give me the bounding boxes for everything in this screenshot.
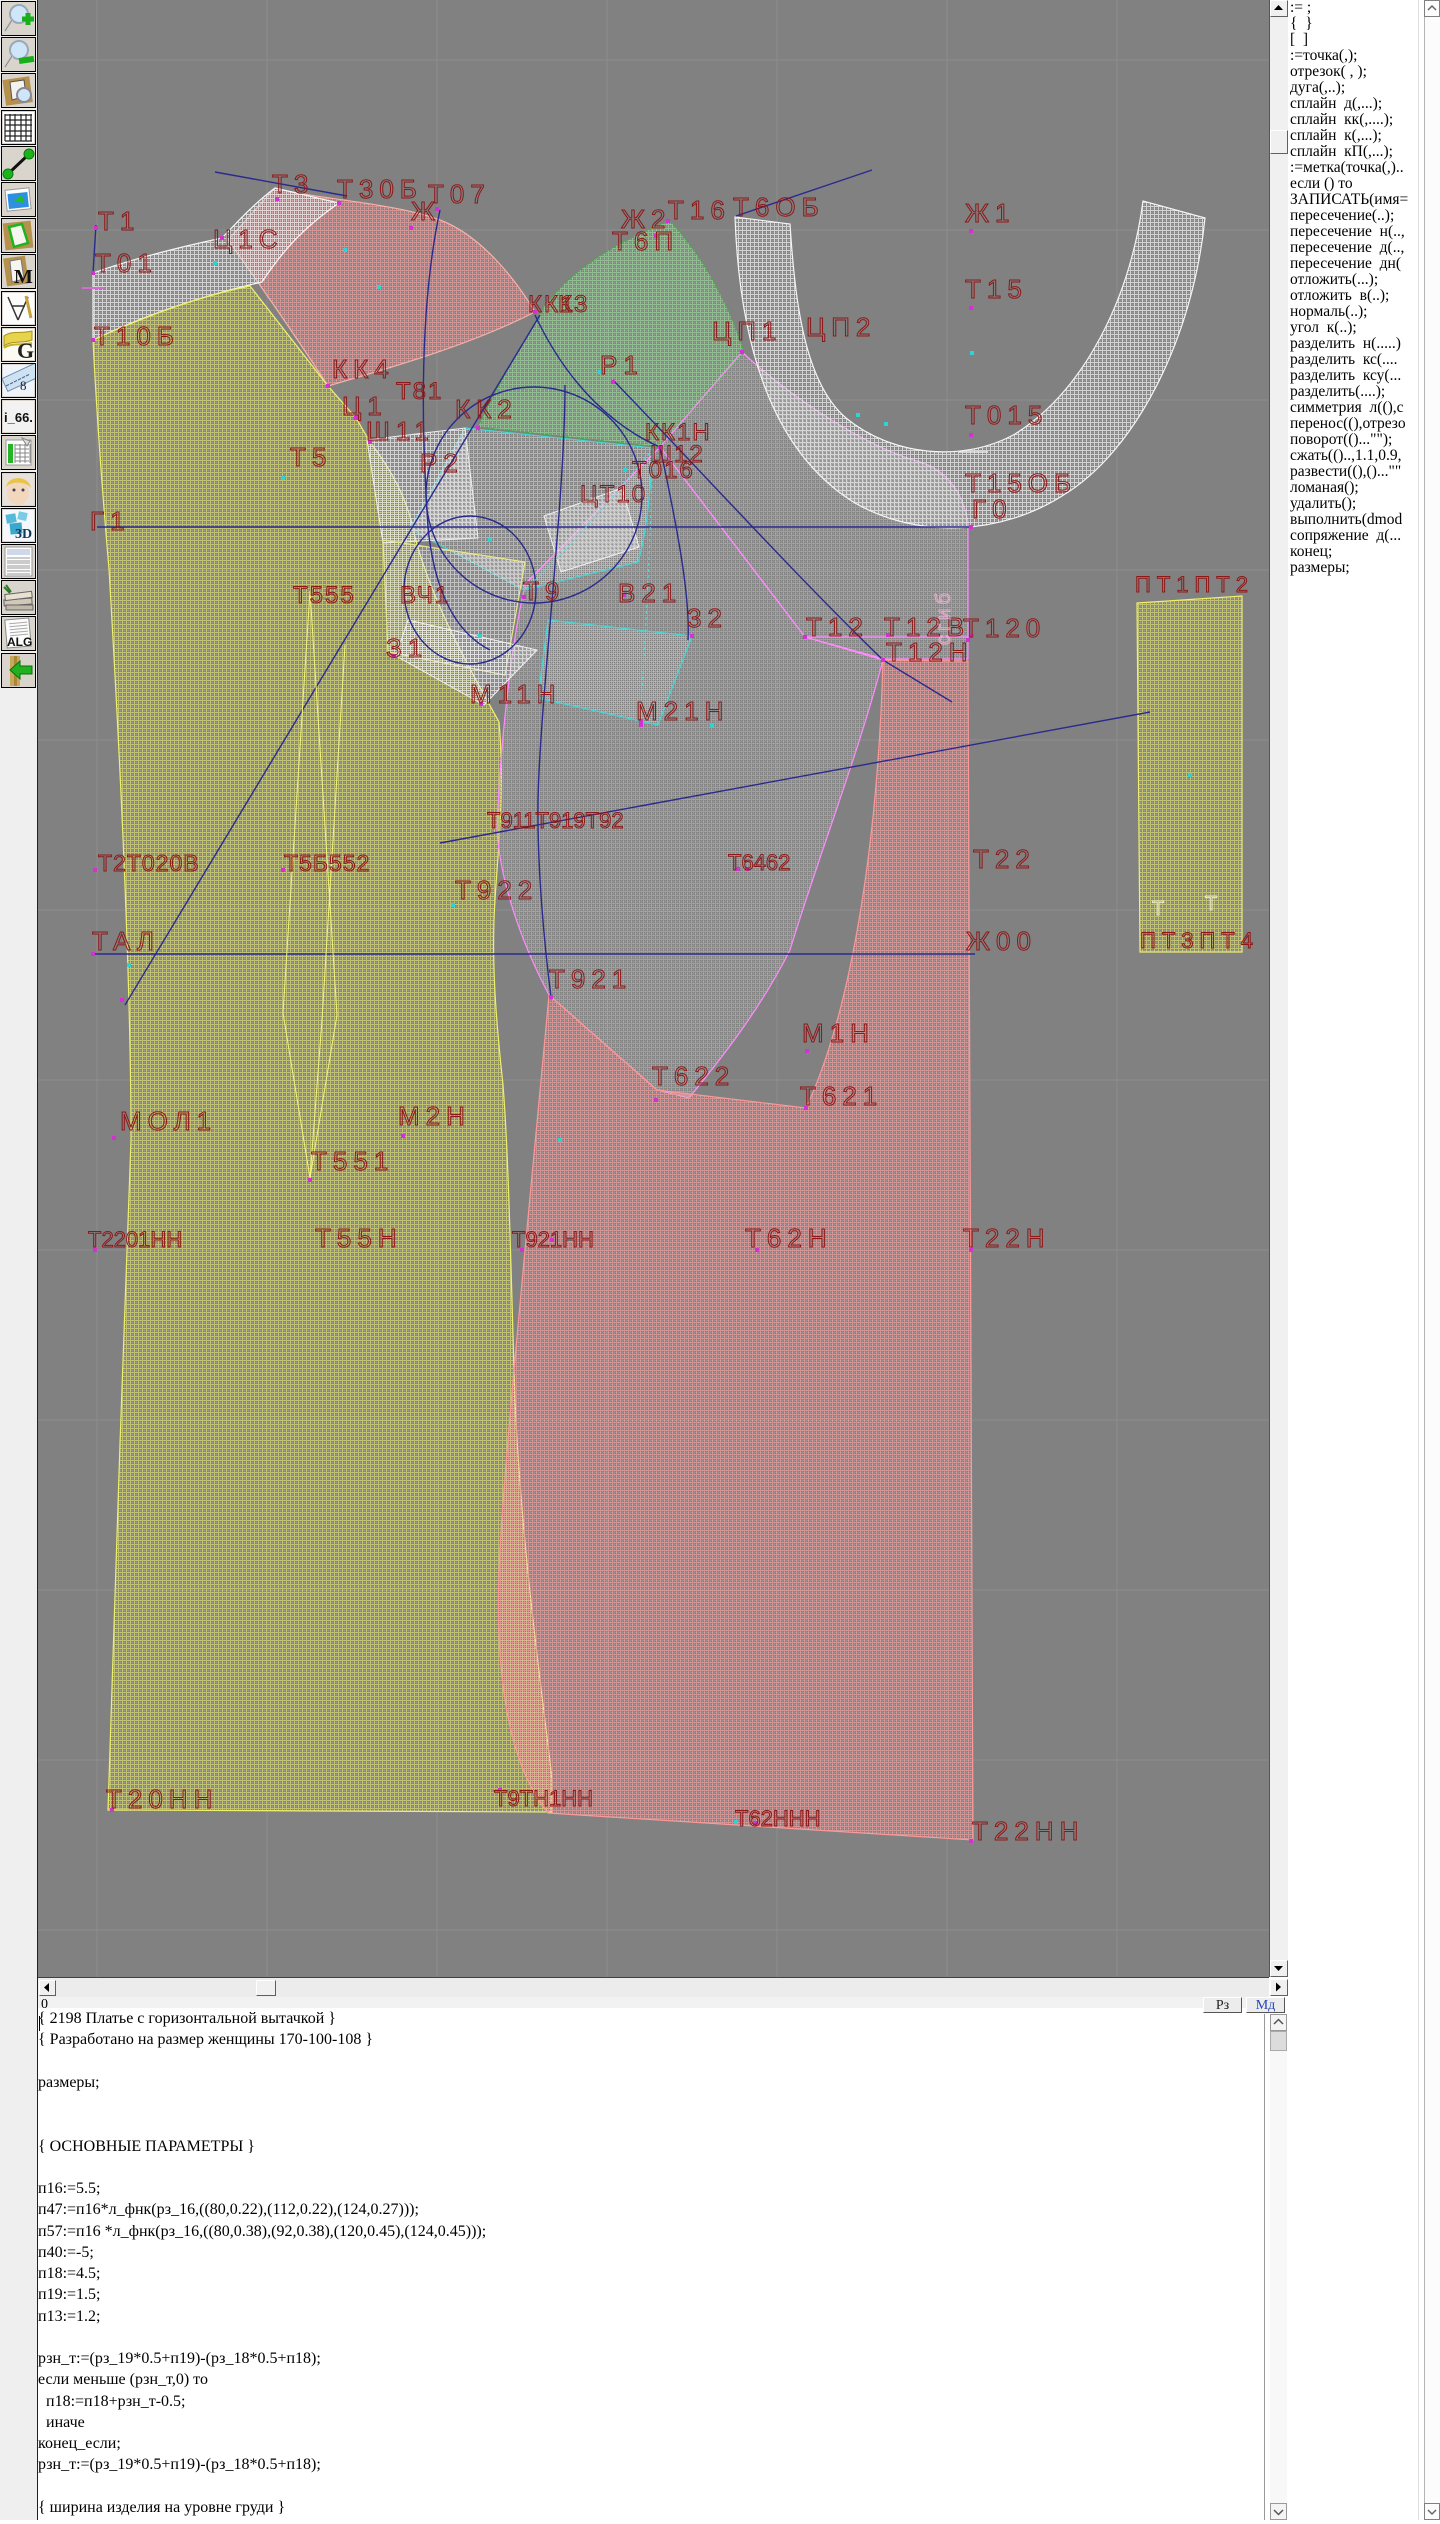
svg-text:сгиб: сгиб	[933, 589, 955, 645]
svg-text:Т62Н: Т62Н	[745, 1223, 833, 1253]
svg-text:Т55Н: Т55Н	[315, 1223, 403, 1253]
svg-text:Т22Н: Т22Н	[963, 1223, 1051, 1253]
svg-text:Г1: Г1	[90, 506, 131, 536]
svg-text:Т10Б: Т10Б	[94, 321, 180, 351]
svg-text:Т: Т	[1152, 898, 1164, 920]
svg-text:Т6ОБ: Т6ОБ	[733, 192, 825, 222]
svg-text:Ц1С: Ц1С	[213, 224, 283, 254]
svg-text:Ш11: Ш11	[366, 416, 435, 446]
svg-text:Т12Н: Т12Н	[886, 637, 974, 667]
svg-text:Т5: Т5	[290, 442, 332, 472]
svg-text:32: 32	[687, 603, 728, 633]
svg-text:ЦП2: ЦП2	[806, 312, 876, 342]
svg-text:МОЛ1: МОЛ1	[120, 1106, 217, 1136]
svg-text:Т30Б: Т30Б	[337, 174, 423, 204]
svg-text:Ж2: Ж2	[621, 204, 671, 234]
svg-text:Т921: Т921	[549, 964, 632, 994]
svg-text:К3: К3	[558, 291, 589, 318]
svg-text:Т22НН: Т22НН	[972, 1816, 1084, 1846]
svg-text:ТАЛ: ТАЛ	[92, 926, 160, 956]
svg-text:М21Н: М21Н	[636, 696, 729, 726]
svg-text:Т015: Т015	[965, 400, 1048, 430]
svg-text:Т3: Т3	[272, 169, 314, 199]
svg-text:Т5Б552: Т5Б552	[284, 850, 370, 876]
svg-text:Т551: Т551	[311, 1146, 394, 1176]
svg-text:ЦТ10: ЦТ10	[580, 481, 647, 508]
svg-text:Т2Т020В: Т2Т020В	[98, 850, 200, 876]
svg-text:Т555: Т555	[293, 582, 356, 609]
svg-text:M: M	[14, 266, 33, 288]
svg-text:i_66.: i_66.	[4, 410, 33, 425]
svg-text:G: G	[17, 338, 34, 361]
svg-text:ЦП1: ЦП1	[712, 316, 782, 346]
svg-text:Т9ТН1НН: Т9ТН1НН	[494, 1786, 593, 1811]
svg-text:Т922: Т922	[455, 875, 538, 905]
svg-text:М11Н: М11Н	[470, 679, 561, 709]
svg-text:КК4: КК4	[332, 354, 395, 384]
svg-text:Р1: Р1	[600, 350, 644, 380]
svg-text:ПТ1ПТ2: ПТ1ПТ2	[1135, 572, 1254, 597]
svg-text:Т921НН: Т921НН	[512, 1227, 594, 1252]
svg-text:ПТ3ПТ4: ПТ3ПТ4	[1140, 928, 1259, 953]
svg-text:Т016: Т016	[632, 457, 695, 484]
svg-text:В21: В21	[618, 578, 682, 608]
svg-text:Т15: Т15	[965, 274, 1028, 304]
svg-text:Ж00: Ж00	[966, 926, 1037, 956]
svg-text:Т120: Т120	[963, 613, 1046, 643]
svg-text:КК2: КК2	[455, 394, 518, 424]
svg-text:Т: Т	[1205, 893, 1217, 915]
svg-text:Т22: Т22	[973, 844, 1036, 874]
svg-text:Т9: Т9	[523, 576, 565, 606]
svg-text:ВЧ1: ВЧ1	[400, 582, 450, 609]
svg-text:М1Н: М1Н	[802, 1018, 875, 1048]
svg-text:Т1: Т1	[98, 206, 140, 236]
svg-text:Ж: Ж	[411, 196, 441, 226]
svg-text:З1: З1	[386, 633, 428, 663]
svg-text:Т6462: Т6462	[728, 850, 790, 875]
svg-text:Т20НН: Т20НН	[106, 1784, 218, 1814]
svg-text:Т621: Т621	[800, 1081, 883, 1111]
svg-text:М2Н: М2Н	[398, 1101, 471, 1131]
svg-text:Т62ННН: Т62ННН	[735, 1806, 821, 1831]
svg-text:Т911Т919Т92: Т911Т919Т92	[487, 808, 624, 833]
svg-text:ALG: ALG	[7, 635, 32, 649]
svg-text:Г0: Г0	[972, 494, 1013, 524]
svg-text:8: 8	[20, 378, 27, 393]
svg-text:Ж1: Ж1	[965, 198, 1015, 228]
svg-text:Т81: Т81	[396, 378, 443, 405]
svg-text:Т16: Т16	[668, 195, 731, 225]
svg-text:Т2201НН: Т2201НН	[88, 1227, 182, 1252]
svg-text:Р2: Р2	[420, 448, 464, 478]
svg-text:3D: 3D	[15, 527, 32, 542]
svg-text:Т622: Т622	[652, 1061, 735, 1091]
svg-text:Т12: Т12	[806, 612, 869, 642]
svg-text:Т01: Т01	[95, 248, 158, 278]
